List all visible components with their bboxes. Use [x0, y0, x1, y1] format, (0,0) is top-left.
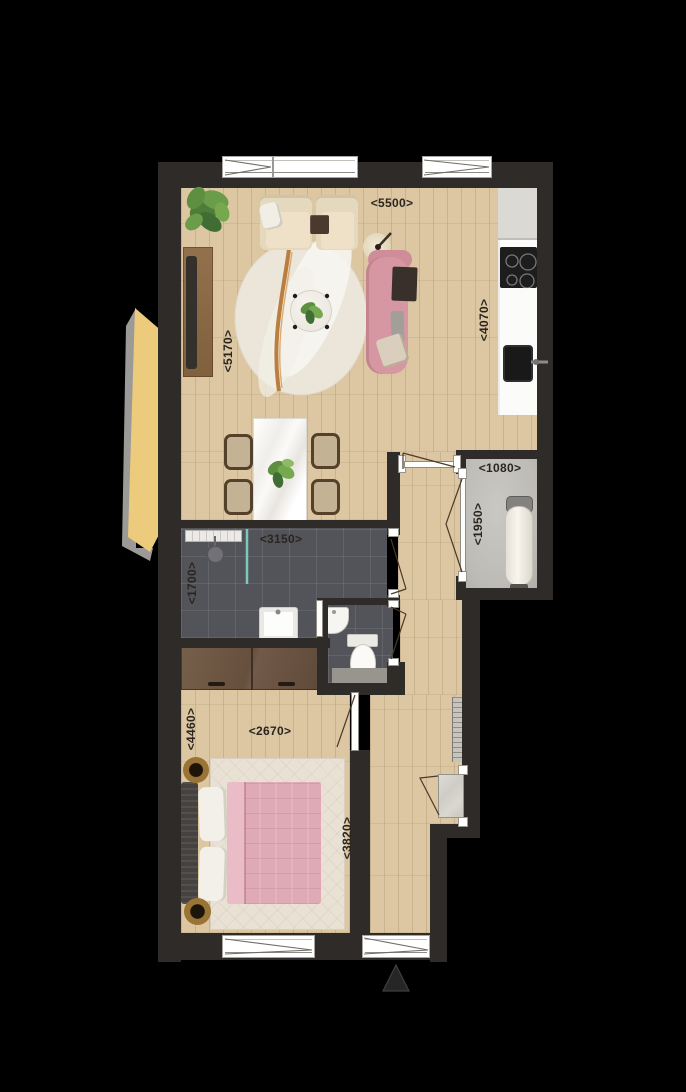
bed-pillow-top [198, 787, 228, 842]
wall-left [158, 162, 181, 962]
nightstand-bottom [184, 898, 211, 925]
window-frame-bar [225, 172, 355, 173]
shower-head [206, 545, 225, 564]
bathroom-radiator [185, 530, 242, 542]
dim-label-kitchen-wall: <4070> [477, 299, 491, 342]
dim-label-bedroom-width: <2670> [249, 724, 292, 738]
dim-label-bathroom-width: <3150> [260, 532, 303, 546]
window-frame-bar [225, 939, 312, 940]
doorframe-entry-bottom [458, 817, 468, 827]
bed-duvet-fold [227, 782, 244, 904]
dim-label-hallway-length: <3820> [340, 817, 354, 860]
dim-label-bedroom-height: <4460> [184, 708, 198, 751]
dining-chair-4 [311, 479, 340, 515]
doorframe-wc-bottom [388, 658, 399, 666]
bed-pillow-bottom [198, 847, 228, 902]
hallway-floor-bottom [370, 824, 432, 933]
coffee-table [290, 290, 332, 332]
window-living-left [222, 156, 358, 178]
wardrobe-handle-2 [278, 682, 295, 686]
nightstand-top [183, 757, 209, 783]
dining-table [253, 418, 307, 523]
window-bedroom [222, 935, 315, 958]
door-leaf-living-hall [404, 461, 454, 468]
window-frame-bar [365, 939, 427, 940]
floor-plan-canvas: <5500> <5170> <4070> <1080> <1950> <3150… [0, 0, 686, 1092]
dining-chair-1 [224, 434, 253, 470]
wall-right-mid [462, 588, 480, 838]
pink-sofa-throw [391, 267, 417, 302]
wardrobe-divider [251, 645, 253, 690]
bathroom-sink [259, 607, 298, 641]
window-living-left-mullion [272, 157, 274, 177]
wardrobe-handle-1 [208, 682, 225, 686]
doorframe-bathroom-top [388, 528, 399, 537]
dim-label-living-width: <5500> [371, 196, 414, 210]
dining-chair-2 [224, 479, 253, 515]
dim-label-living-height: <5170> [221, 330, 235, 373]
wall-right-low [430, 824, 447, 962]
window-frame-bar [225, 952, 312, 953]
door-leaf-storage [460, 478, 466, 572]
tv-screen [186, 256, 197, 369]
wall-storage-top [456, 450, 553, 459]
hallway-floor-mid [400, 600, 462, 695]
door-leaf-bedroom [351, 692, 359, 751]
bed-headboard [181, 782, 198, 904]
window-frame-bar [425, 160, 489, 161]
entry-door-panel [438, 774, 464, 818]
dim-label-bathroom-depth: <1700> [185, 562, 199, 605]
wall-bathroom-top [181, 520, 400, 528]
doorframe-storage-bottom [458, 571, 467, 582]
dim-label-storage-depth: <1950> [471, 503, 485, 546]
dim-label-storage-width: <1080> [479, 461, 522, 475]
window-living-right [422, 156, 492, 178]
window-frame-bar [365, 952, 427, 953]
cooktop [500, 247, 537, 288]
boiler-body [505, 506, 533, 586]
north-arrow-icon [383, 965, 409, 991]
wall-bathroom-bottom [181, 638, 330, 648]
window-frame-bar [425, 172, 489, 173]
wc-floor-mat [332, 668, 393, 683]
kitchen-tall-cabinet [498, 188, 537, 240]
doorframe-wc-top [388, 600, 399, 608]
wall-storage-bottom [456, 588, 553, 600]
side-tray-table [310, 215, 329, 234]
doorframe-bathroom-bottom [388, 589, 399, 598]
kitchen-sink [503, 345, 533, 382]
door-leaf-bathroom [316, 600, 323, 637]
window-frame-bar [225, 160, 355, 161]
exterior-shadow-sliver [122, 308, 153, 561]
dining-chair-3 [311, 433, 340, 469]
hallway-floor-upper [398, 452, 462, 600]
window-hallway [362, 935, 430, 958]
wall-right-top [537, 162, 553, 600]
